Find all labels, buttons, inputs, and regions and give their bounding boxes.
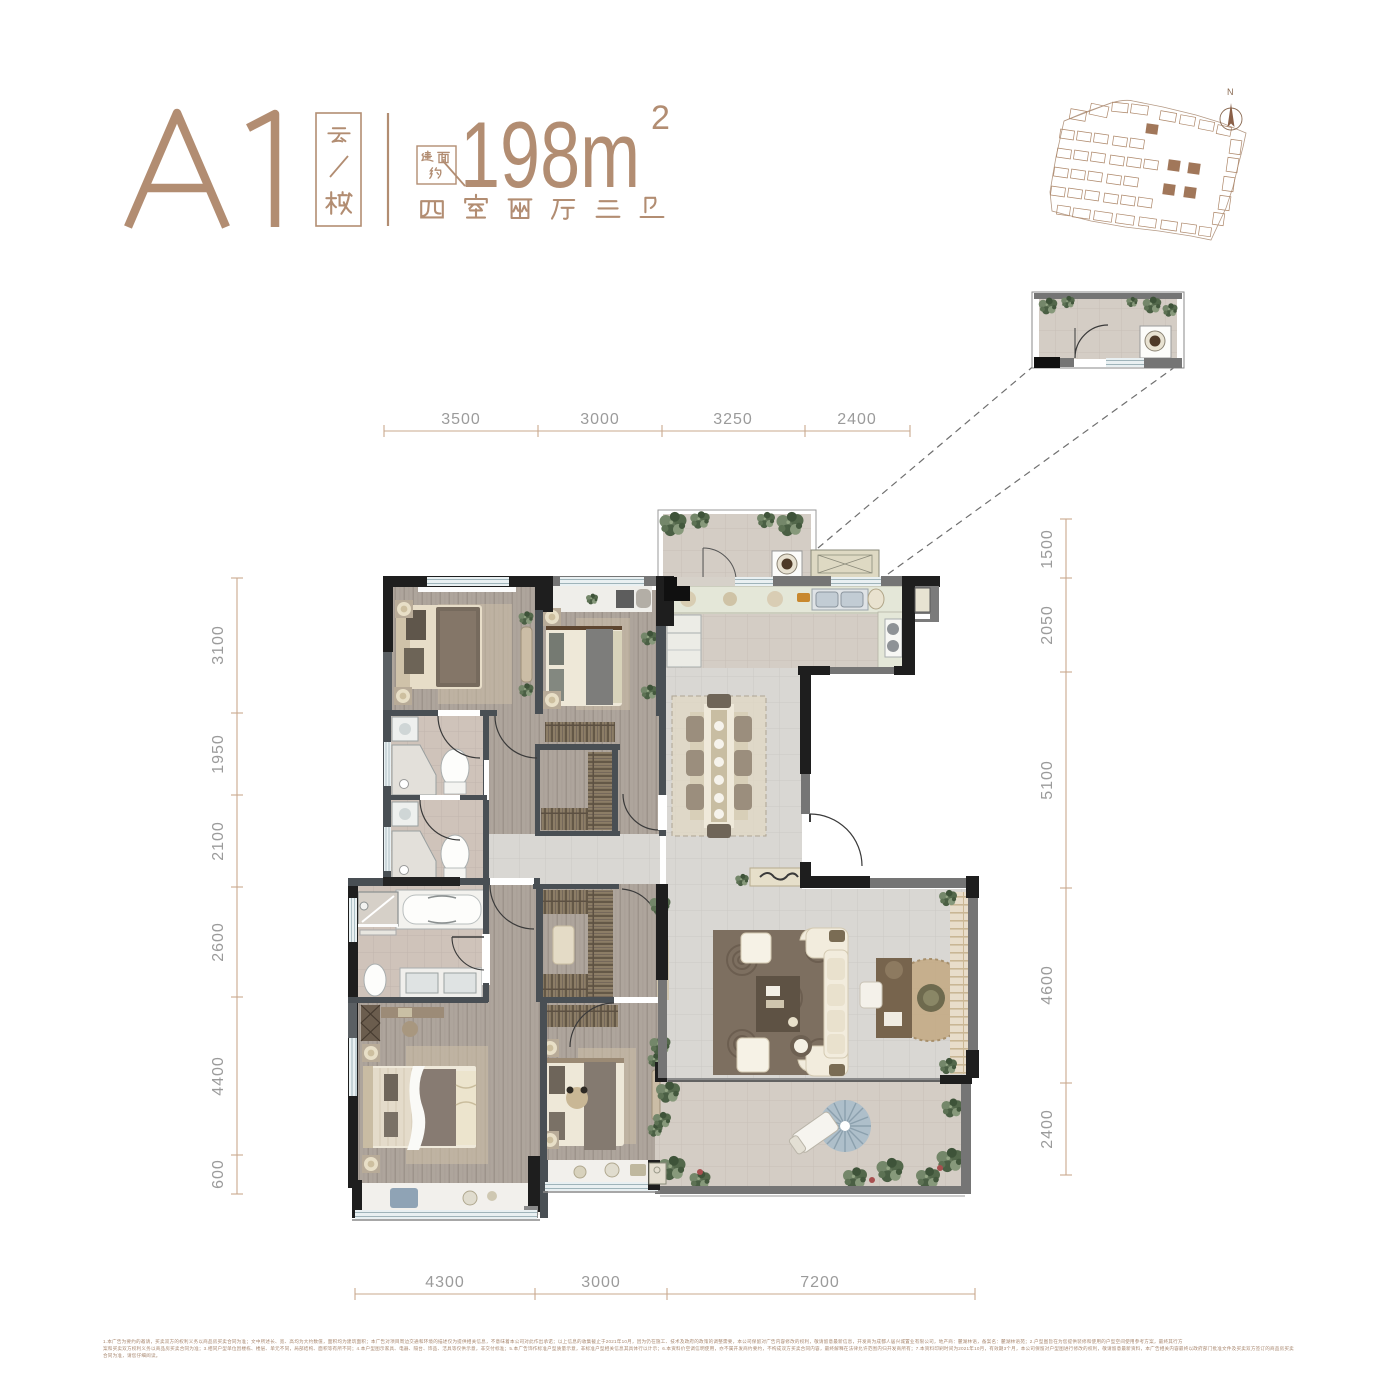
svg-text:3500: 3500 xyxy=(441,411,481,428)
svg-text:2400: 2400 xyxy=(1039,1109,1056,1149)
svg-text:600: 600 xyxy=(210,1159,227,1189)
svg-text:4300: 4300 xyxy=(425,1274,465,1291)
svg-text:1950: 1950 xyxy=(210,734,227,774)
svg-text:4400: 4400 xyxy=(210,1056,227,1096)
svg-text:3000: 3000 xyxy=(581,1274,621,1291)
svg-text:5100: 5100 xyxy=(1039,760,1056,800)
svg-text:4600: 4600 xyxy=(1039,965,1056,1005)
svg-text:3000: 3000 xyxy=(580,411,620,428)
svg-text:3250: 3250 xyxy=(713,411,753,428)
svg-text:2400: 2400 xyxy=(837,411,877,428)
svg-text:1500: 1500 xyxy=(1039,529,1056,569)
svg-text:2100: 2100 xyxy=(210,821,227,861)
svg-text:3100: 3100 xyxy=(210,625,227,665)
svg-text:N: N xyxy=(1227,87,1234,97)
svg-text:7200: 7200 xyxy=(800,1274,840,1291)
svg-text:2050: 2050 xyxy=(1039,605,1056,645)
svg-text:2600: 2600 xyxy=(210,922,227,962)
